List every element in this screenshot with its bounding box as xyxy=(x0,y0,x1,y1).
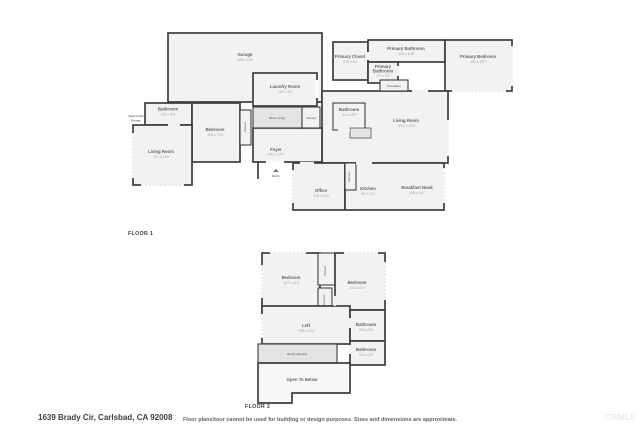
room-dims-bathroom-lower-f2: 5'11 x 4'9 xyxy=(359,353,373,357)
stairs-down-label: Stairs (Down) xyxy=(287,352,307,356)
closet-lower-label-f2: Closet xyxy=(322,295,326,304)
room-label-garage: Garage xyxy=(238,52,253,57)
room-dims-foyer: 6'11 x 10'7 xyxy=(268,153,284,157)
space-not-shown-label-line2: Shown xyxy=(131,119,141,123)
room-dims-primary-closet: 9'10 x 6'4 xyxy=(343,60,357,64)
closet-bedroom-label: Closet xyxy=(243,122,247,131)
room-dims-bedroom-right-f2: 13'3 x 14'7 xyxy=(349,286,365,290)
room-label-bedroom: Bedroom xyxy=(206,127,225,132)
closet-office-label: Closet xyxy=(347,172,351,181)
closet-upper-label-f2: Closet xyxy=(323,266,327,275)
room-dims-primary-bathroom-2: 5'7 x 4'8 xyxy=(377,74,389,78)
room-label-bathroom-upper-f2: Bathroom xyxy=(356,322,376,327)
floorplan-page: Garage 28'8 x 19'2 Laundry Room 16'2 x 6… xyxy=(0,0,640,427)
room-label-living-room-left: Living Room xyxy=(148,149,174,154)
room-dims-living-room-left: 13'7 x 14'8 xyxy=(153,155,169,159)
room-dims-laundry: 16'2 x 6'0 xyxy=(278,90,292,94)
room-label-office: Office xyxy=(315,188,328,193)
room-foyer xyxy=(253,128,322,162)
room-label-bedroom-right-f2: Bedroom xyxy=(348,280,367,285)
floor1-plan: Garage 28'8 x 19'2 Laundry Room 16'2 x 6… xyxy=(128,33,512,237)
open-to-below-area xyxy=(258,363,350,403)
room-label-bedroom-left-f2: Bedroom xyxy=(282,275,301,280)
room-dims-bedroom-left-f2: 14'7 x 11'8 xyxy=(283,281,299,285)
room-label-breakfast-nook: Breakfast Nook xyxy=(401,185,433,190)
room-dims-living-room: 18'11 x 19'8 xyxy=(397,124,414,128)
room-label-living-room: Living Room xyxy=(393,118,419,123)
room-dims-garage: 28'8 x 19'2 xyxy=(237,58,253,62)
room-dims-office: 13'9 x 13'2 xyxy=(313,194,329,198)
floor2-title: FLOOR 2 xyxy=(245,404,270,410)
stairs-up-label: Stairs (Up) xyxy=(269,116,285,120)
room-dims-loft: 19'8 x 13'4 xyxy=(298,329,314,333)
room-label-kitchen: Kitchen xyxy=(360,186,376,191)
disclaimer-text: Floor plans/tour cannot be used for buil… xyxy=(0,417,640,423)
mls-watermark: CRMLS xyxy=(605,413,636,422)
room-label-bathroom-lower-f2: Bathroom xyxy=(356,347,376,352)
room-dims-bathroom-left: 10'9 x 4'11 xyxy=(160,113,176,117)
room-label-primary-bedroom: Primary Bedroom xyxy=(460,54,496,59)
room-primary-bedroom xyxy=(445,40,512,91)
floorplan-drawing: Garage 28'8 x 19'2 Laundry Room 16'2 x 6… xyxy=(0,0,640,427)
room-dims-kitchen: 9'0 x 10'7 xyxy=(361,192,375,196)
entry-label: Entry xyxy=(272,174,280,178)
closet-hall-label: Closet xyxy=(306,116,315,120)
room-dims-primary-bathroom: 14'8 x 10'8 xyxy=(398,52,414,56)
room-label-laundry: Laundry Room xyxy=(270,84,300,89)
room-dims-primary-bedroom: 15'5 x 18'7 xyxy=(470,60,486,64)
room-label-bathroom-left: Bathroom xyxy=(158,107,178,112)
floor2-plan: Bedroom 14'7 x 11'8 Closet Closet Bedroo… xyxy=(245,253,385,410)
room-primary-bathroom xyxy=(368,40,445,62)
fireplace-label: Fireplace xyxy=(387,84,401,88)
entry-direction-arrow-icon xyxy=(273,169,278,172)
room-office xyxy=(293,163,345,210)
shaded-area xyxy=(350,128,371,138)
room-label-primary-closet: Primary Closet xyxy=(335,54,366,59)
room-dims-bathroom-upper-f2: 5'11 x 8'9 xyxy=(359,328,373,332)
room-dims-bedroom: 10'9 x 11'8 xyxy=(207,133,223,137)
room-label-primary-bathroom-2-line2: Bathroom xyxy=(373,69,393,74)
room-label-loft: Loft xyxy=(302,323,311,328)
floor1-title: FLOOR 1 xyxy=(128,231,153,237)
open-to-below-label: Open To Below xyxy=(287,377,319,382)
room-label-bathroom-center: Bathroom xyxy=(339,107,359,112)
space-not-shown-label-line1: Space Not xyxy=(128,114,143,118)
room-label-primary-bathroom: Primary Bathroom xyxy=(387,46,425,51)
room-dims-breakfast-nook: 14'8 x 14'7 xyxy=(409,191,425,195)
room-dims-bathroom-center: 4'11 x 8'9 xyxy=(342,113,356,117)
room-label-foyer: Foyer xyxy=(270,147,282,152)
